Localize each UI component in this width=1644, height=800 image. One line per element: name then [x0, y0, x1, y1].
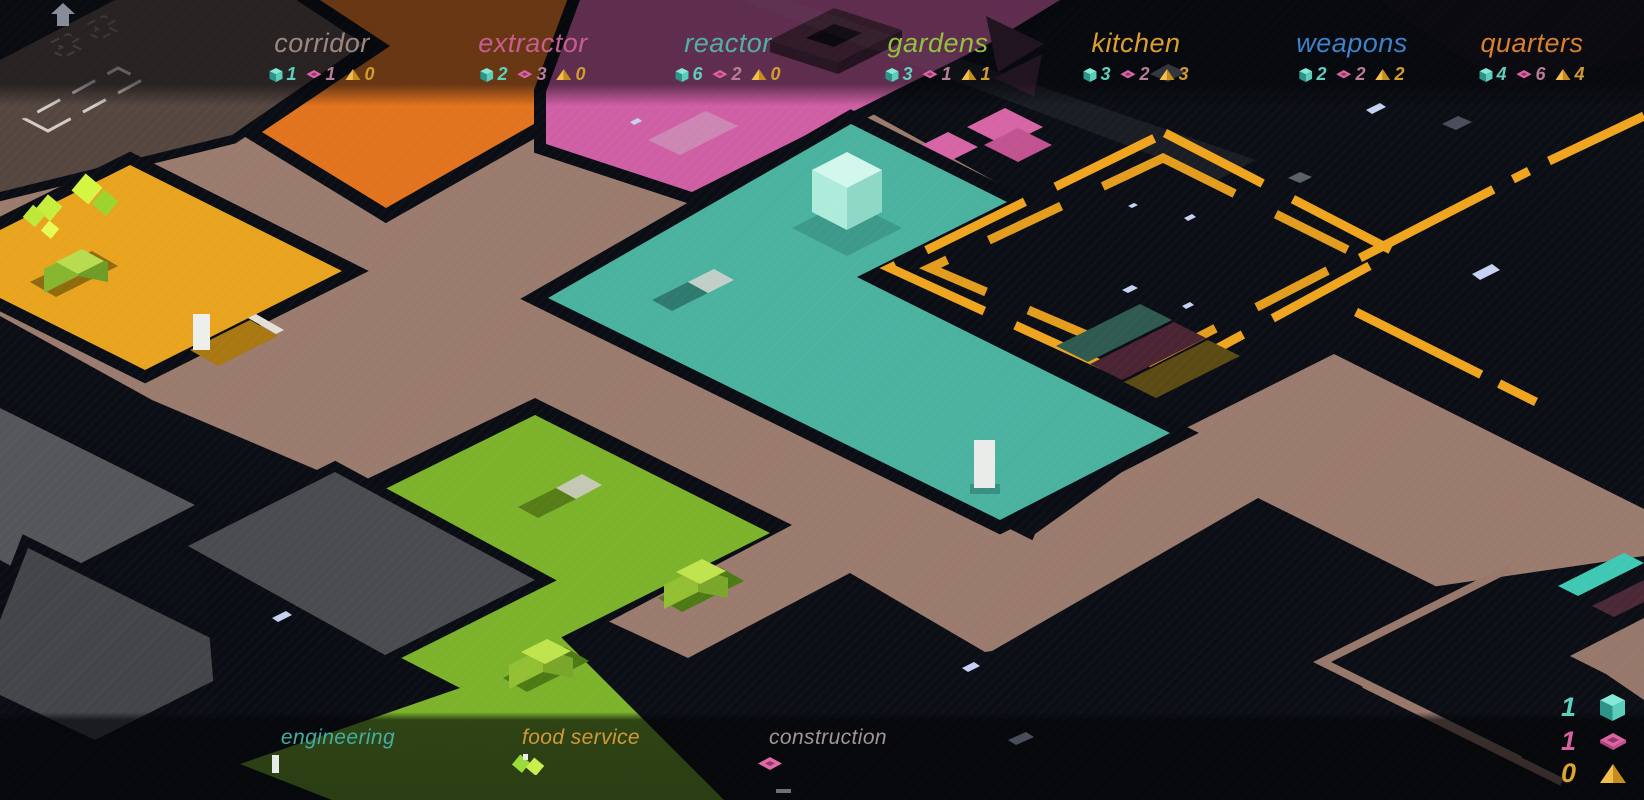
cube-resource-icon	[1299, 68, 1312, 82]
total-pyramids: 0	[1532, 758, 1576, 789]
crew-name: engineering	[268, 726, 408, 750]
gem-icon	[526, 758, 544, 775]
room-tab-corridor[interactable]: corridor 1 1 0	[269, 28, 374, 85]
total-cubes: 1	[1532, 692, 1576, 723]
room-tab-reactor[interactable]: reactor 6 2 0	[675, 28, 780, 85]
crew-tab-engineering[interactable]: engineering	[268, 726, 408, 775]
plate-count: 6	[1535, 64, 1545, 85]
room-name: reactor	[675, 28, 780, 59]
crew-tab-food-service[interactable]: food service	[511, 726, 651, 775]
room-resource-counts: 6 2 0	[675, 64, 780, 85]
crew-name: food service	[511, 726, 651, 750]
room-name: weapons	[1296, 28, 1408, 59]
room-tab-quarters[interactable]: quarters 4 6 4	[1479, 28, 1584, 85]
cube-resource-icon	[1083, 68, 1096, 82]
pyramid-resource-icon	[557, 69, 572, 80]
cube-resource-icon	[885, 68, 898, 82]
room-resource-counts: 3 1 1	[885, 64, 990, 85]
room-resource-counts: 4 6 4	[1479, 64, 1584, 85]
plate-count: 3	[536, 64, 546, 85]
room-name: extractor	[478, 28, 588, 59]
pyramid-resource-icon	[1160, 69, 1175, 80]
room-tab-kitchen[interactable]: kitchen 3 2 3	[1083, 28, 1188, 85]
cube-count: 2	[1316, 64, 1326, 85]
room-name: gardens	[885, 28, 990, 59]
food-service-worker-icons	[511, 753, 651, 775]
pyramid-resource-icon	[346, 69, 361, 80]
pyramid-resource-icon	[1600, 764, 1626, 783]
crew-tab-construction[interactable]: construction	[758, 726, 898, 775]
worker-icon	[523, 754, 528, 760]
crew-name: construction	[758, 726, 898, 750]
construction-worker-icons	[758, 753, 898, 775]
plate-resource-icon	[517, 70, 532, 80]
room-resource-counts: 2 3 0	[478, 64, 588, 85]
room-name: quarters	[1479, 28, 1584, 59]
cube-count: 3	[1100, 64, 1110, 85]
total-plates: 1	[1532, 726, 1576, 757]
room-tab-weapons[interactable]: weapons 2 2 2	[1296, 28, 1408, 85]
cube-count: 2	[497, 64, 507, 85]
plate-count: 1	[325, 64, 335, 85]
room-resource-counts: 3 2 3	[1083, 64, 1188, 85]
plate-count: 1	[941, 64, 951, 85]
room-name: corridor	[269, 28, 374, 59]
pyramid-count: 3	[1179, 64, 1189, 85]
cube-resource-icon	[1479, 68, 1492, 82]
pyramid-count: 2	[1395, 64, 1405, 85]
total-cubes-row: 1	[1532, 692, 1626, 723]
pyramid-count: 4	[1575, 64, 1585, 85]
game-viewport: corridor 1 1 0 extractor 2 3 0 reactor 6…	[0, 0, 1644, 800]
pyramid-resource-icon	[1376, 69, 1391, 80]
plate-resource-icon	[1516, 70, 1531, 80]
cube-count: 4	[1496, 64, 1506, 85]
room-tab-extractor[interactable]: extractor 2 3 0	[478, 28, 588, 85]
plate-count: 2	[1139, 64, 1149, 85]
pyramid-count: 0	[771, 64, 781, 85]
pyramid-count: 0	[576, 64, 586, 85]
worker-icon	[272, 755, 279, 773]
plate-count: 2	[1355, 64, 1365, 85]
total-plates-row: 1	[1532, 726, 1626, 757]
cube-resource-icon	[269, 68, 282, 82]
cube-resource-icon	[480, 68, 493, 82]
cube-count: 1	[286, 64, 296, 85]
plate-count: 2	[731, 64, 741, 85]
engineering-worker-icons	[268, 753, 408, 775]
home-icon	[48, 2, 78, 28]
room-resource-counts: 2 2 2	[1296, 64, 1408, 85]
isometric-base-map	[0, 0, 1644, 800]
dash-marker	[776, 789, 791, 793]
pyramid-resource-icon	[962, 69, 977, 80]
pyramid-count: 0	[365, 64, 375, 85]
plate-resource-icon	[922, 70, 937, 80]
plate-resource-icon	[712, 70, 727, 80]
plate-resource-icon	[306, 70, 321, 80]
home-button[interactable]	[48, 2, 78, 28]
room-name: kitchen	[1083, 28, 1188, 59]
cube-resource-icon	[1600, 694, 1625, 721]
plate-resource-icon	[1600, 733, 1626, 750]
plate-resource-icon	[1336, 70, 1351, 80]
pyramid-resource-icon	[752, 69, 767, 80]
room-resource-counts: 1 1 0	[269, 64, 374, 85]
room-tab-gardens[interactable]: gardens 3 1 1	[885, 28, 990, 85]
cube-count: 3	[902, 64, 912, 85]
cube-resource-icon	[675, 68, 688, 82]
total-pyramids-row: 0	[1532, 758, 1626, 789]
pyramid-count: 1	[981, 64, 991, 85]
plate-resource-icon	[1120, 70, 1135, 80]
pyramid-resource-icon	[1556, 69, 1571, 80]
cube-count: 6	[692, 64, 702, 85]
